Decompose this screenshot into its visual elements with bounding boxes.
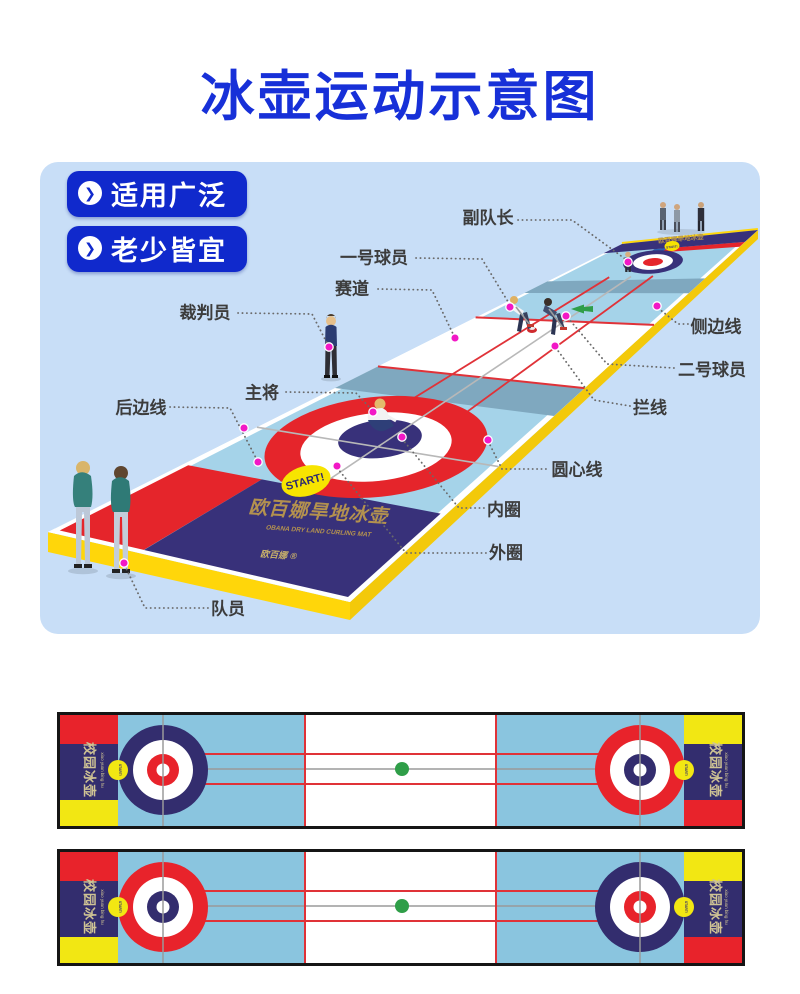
anchor-dot-team-member bbox=[120, 559, 128, 567]
tv2-right-start-circle bbox=[674, 897, 694, 917]
leader-player-1 bbox=[416, 258, 510, 305]
page-title: 冰壶运动示意图 bbox=[0, 52, 800, 131]
svg-text:START!: START! bbox=[684, 901, 688, 913]
label-side-line: 侧边线 bbox=[691, 313, 742, 338]
anchor-dot-block-line bbox=[551, 342, 559, 350]
tv1-right-band: 校园冰壶 xiao yuan bing hu START! bbox=[674, 712, 745, 829]
svg-text:START!: START! bbox=[684, 764, 688, 776]
label-captain: 主将 bbox=[245, 379, 279, 404]
figure-far-person-2 bbox=[674, 204, 680, 232]
anchor-dot-inner-ring bbox=[398, 433, 406, 441]
label-vice-captain: 副队长 bbox=[463, 204, 514, 229]
tv1-left-start-circle bbox=[108, 760, 128, 780]
badge-label: 适用广泛 bbox=[111, 174, 227, 213]
svg-text:START!: START! bbox=[118, 764, 122, 776]
label-team-member: 队员 bbox=[211, 595, 245, 620]
tv2-right-band-pinyin: xiao yuan bing hu bbox=[724, 889, 729, 925]
top-view-1: 校园冰壶 xiao yuan bing hu START! 校园冰壶 xiao … bbox=[57, 712, 745, 834]
label-player-2: 二号球员 bbox=[678, 356, 746, 381]
arrow-circle-icon: ❯ bbox=[78, 181, 102, 205]
tv1-right-band-pinyin: xiao yuan bing hu bbox=[724, 752, 729, 788]
svg-text:START!: START! bbox=[118, 901, 122, 913]
badge-label: 老少皆宜 bbox=[111, 229, 227, 268]
label-inner-ring: 内圈 bbox=[487, 496, 521, 521]
badge-wide-use: ❯ 适用广泛 bbox=[67, 171, 247, 217]
anchor-dot-back-line bbox=[254, 458, 262, 466]
anchor-dot-vice-captain bbox=[624, 258, 632, 266]
tv1-green-dot bbox=[395, 762, 409, 776]
tv2-left-band: 校园冰壶 xiao yuan bing hu START! bbox=[57, 849, 128, 966]
anchor-dot-side-line bbox=[653, 302, 661, 310]
anchor-dot-captain bbox=[369, 408, 377, 416]
tv1-left-band-text: 校园冰壶 bbox=[82, 742, 97, 798]
tv2-left-band-text: 校园冰壶 bbox=[82, 879, 97, 935]
top-view-2: 校园冰壶 xiao yuan bing hu START! 校园冰壶 xiao … bbox=[57, 849, 745, 971]
page: { "title": {"text": "冰壶运动示意图"}, "badges"… bbox=[0, 0, 800, 994]
figure-far-person-3 bbox=[698, 202, 704, 231]
anchor-dot-center-line bbox=[484, 436, 492, 444]
figure-far-person-1 bbox=[660, 202, 666, 230]
tv2-left-start-circle bbox=[108, 897, 128, 917]
leader-track bbox=[378, 289, 454, 336]
shadow bbox=[68, 568, 98, 574]
label-back-line: 后边线 bbox=[116, 394, 167, 419]
anchor-dot-outer-ring bbox=[333, 462, 341, 470]
shadow bbox=[106, 573, 136, 579]
label-track: 赛道 bbox=[335, 275, 369, 300]
tv2-right-band: 校园冰壶 xiao yuan bing hu START! bbox=[674, 849, 745, 966]
label-referee: 裁判员 bbox=[180, 299, 231, 324]
badge-all-ages: ❯ 老少皆宜 bbox=[67, 226, 247, 272]
tv1-left-band: 校园冰壶 xiao yuan bing hu START! bbox=[57, 712, 128, 829]
leader-referee bbox=[238, 313, 328, 345]
tv1-right-start-circle bbox=[674, 760, 694, 780]
anchor-dot-player-2 bbox=[562, 312, 570, 320]
tv1-left-band-pinyin: xiao yuan bing hu bbox=[100, 752, 105, 788]
label-center-line: 圆心线 bbox=[552, 456, 603, 481]
tv2-left-band-pinyin: xiao yuan bing hu bbox=[100, 889, 105, 925]
tv2-green-dot bbox=[395, 899, 409, 913]
tv2-right-band-text: 校园冰壶 bbox=[708, 879, 723, 935]
illustration-panel: 欧百娜旱地冰壶 START! START! 欧百娜旱地冰壶 OBANA DRY … bbox=[40, 162, 760, 634]
arrow-circle-icon: ❯ bbox=[78, 236, 102, 260]
label-player-1: 一号球员 bbox=[340, 244, 408, 269]
label-outer-ring: 外圈 bbox=[489, 539, 523, 564]
anchor-dot-track bbox=[451, 334, 459, 342]
anchor-dot-player-1 bbox=[506, 303, 514, 311]
anchor-dot-referee bbox=[325, 343, 333, 351]
tv1-right-band-text: 校园冰壶 bbox=[708, 742, 723, 798]
label-block-line: 拦线 bbox=[633, 394, 667, 419]
anchor-dot-edge bbox=[240, 424, 248, 432]
